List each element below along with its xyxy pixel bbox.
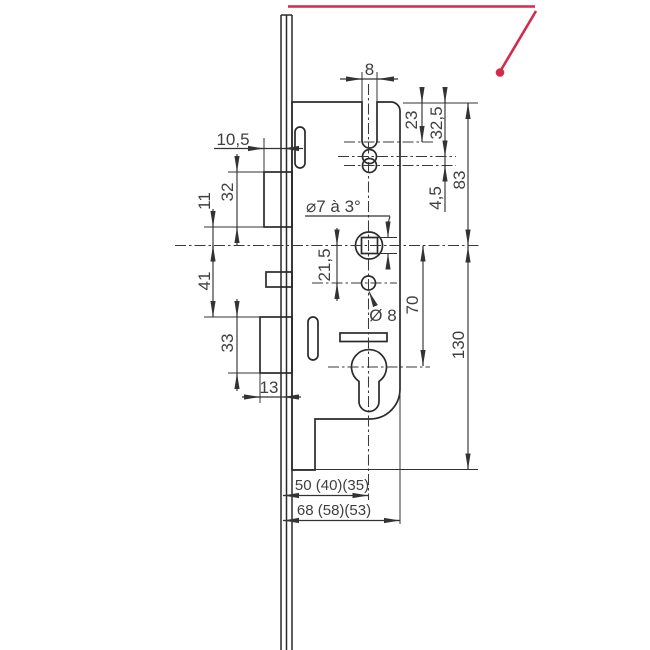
- label-latch-height: 32: [218, 183, 237, 202]
- case-outline: [292, 102, 400, 470]
- label-latch-to-axis: 11: [195, 192, 214, 210]
- label-top-to-axis: 83: [450, 171, 469, 190]
- latch-bolt: [264, 172, 292, 227]
- lock-technical-drawing: 8 10,5 32 11 41 33 13 23 32,5 4,5 83 21,…: [0, 0, 650, 650]
- label-hole-gap: 4,5: [426, 186, 445, 210]
- label-axis-to-bolt: 41: [195, 272, 214, 291]
- label-slot-width: 8: [365, 60, 374, 79]
- label-follower-note: ⌀7 à 3°: [306, 197, 361, 216]
- red-callout-line: [501, 11, 536, 70]
- label-case-depth: 68 (58)(53): [297, 502, 371, 519]
- label-bolt-throw: 13: [260, 378, 279, 397]
- red-callout-dot: [496, 68, 505, 77]
- label-hole8-note: Ø 8: [369, 306, 396, 325]
- label-top-to-slot: 23: [402, 111, 421, 130]
- label-axis-to-cylinder: 70: [403, 296, 422, 315]
- label-axis-to-bottom: 130: [449, 331, 468, 359]
- dimension-lines: [213, 79, 468, 521]
- label-bolt-height: 33: [218, 334, 237, 353]
- aux-block: [266, 272, 292, 287]
- upper-stadium-slot: [295, 127, 305, 168]
- label-backset: 50 (40)(35): [295, 477, 369, 494]
- horizontal-slot: [340, 333, 387, 342]
- faceplate: [281, 15, 292, 650]
- note-hole8-leader: [369, 292, 375, 306]
- red-callout: [288, 7, 536, 77]
- drawing-canvas: 8 10,5 32 11 41 33 13 23 32,5 4,5 83 21,…: [0, 0, 650, 650]
- label-top-to-hole: 32,5: [427, 106, 446, 139]
- label-latch-protrusion: 10,5: [216, 130, 249, 149]
- dimension-labels: 8 10,5 32 11 41 33 13 23 32,5 4,5 83 21,…: [195, 60, 469, 519]
- label-axis-to-hole8: 21,5: [315, 248, 334, 281]
- lower-stadium-slot: [308, 317, 318, 360]
